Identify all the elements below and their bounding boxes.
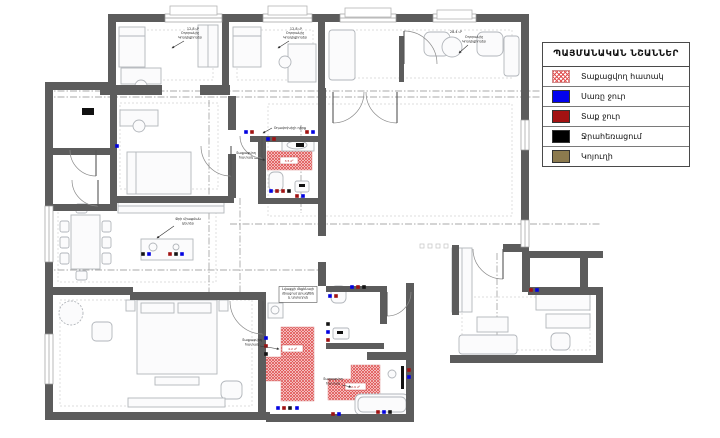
utility-marker	[272, 137, 276, 141]
utility-marker	[168, 252, 172, 256]
wall-segment	[53, 287, 133, 295]
wall-segment	[200, 85, 230, 95]
furniture	[76, 271, 87, 280]
utility-marker	[535, 288, 539, 292]
legend-item: Տաքացվող հատակ	[543, 67, 689, 87]
furniture	[536, 293, 590, 310]
legend-item-label: Կոյուղի	[581, 152, 613, 161]
furniture	[119, 27, 145, 67]
fixture-black	[296, 143, 304, 147]
wall-segment	[53, 204, 116, 211]
utility-marker	[287, 189, 291, 193]
window-sill	[437, 10, 472, 19]
legend-item-label: Ջրահեռացում	[581, 132, 642, 141]
annotation-label: հատակ	[245, 342, 259, 346]
furniture	[477, 317, 508, 332]
utility-marker	[356, 285, 360, 289]
furniture	[271, 306, 279, 314]
utility-marker	[301, 194, 305, 198]
furniture	[504, 36, 519, 76]
wall-segment	[318, 22, 325, 88]
utility-marker	[331, 412, 335, 416]
fixture-black	[82, 108, 94, 115]
furniture	[102, 237, 111, 248]
furniture	[269, 172, 283, 191]
utility-marker	[180, 252, 184, 256]
utility-marker	[266, 137, 270, 141]
utility-marker	[407, 375, 411, 379]
furniture	[60, 237, 69, 248]
wall-segment	[580, 251, 588, 293]
utility-marker	[147, 252, 151, 256]
annotation-leader	[157, 226, 174, 238]
furniture	[288, 44, 316, 82]
window-sill	[170, 6, 217, 15]
legend-swatch	[552, 110, 570, 123]
fixture-black	[401, 366, 404, 389]
furniture	[92, 322, 112, 341]
utility-marker	[382, 410, 386, 414]
wall-segment	[318, 88, 326, 206]
utility-marker	[269, 189, 273, 193]
utility-marker	[275, 189, 279, 193]
legend-title: ՊԱՅՄԱՆԱԿԱՆ ՆՇԱՆՆԵՐ	[543, 43, 689, 67]
annotation-leader	[278, 41, 289, 48]
utility-marker	[288, 406, 292, 410]
wall-segment	[228, 96, 236, 130]
utility-marker	[334, 294, 338, 298]
furniture	[126, 300, 135, 311]
furniture	[128, 398, 225, 407]
furniture	[551, 333, 570, 350]
annotation-label: 12.8 մ²	[187, 27, 200, 31]
annotation-label: 12.8 մ²	[290, 27, 303, 31]
furniture	[459, 335, 517, 354]
wall-segment	[450, 355, 603, 363]
utility-marker	[388, 410, 392, 414]
legend-swatch	[552, 150, 570, 163]
furniture	[279, 56, 291, 68]
door-swing-arc	[473, 249, 503, 279]
heated-floor-chip-label: 3.5 մ²	[285, 159, 295, 163]
annotation-label: Կոնդիցիոներ	[462, 39, 486, 43]
utility-marker	[264, 336, 268, 340]
legend-swatch	[552, 90, 570, 103]
floor-plan-page: 3.5 մ²4.2 մ²2.9 մ² ՕդորակիչԿոնդիցիոներՕդ…	[0, 0, 720, 438]
wall-segment	[318, 262, 326, 286]
fixture-black	[337, 331, 343, 334]
door-swing-arc	[201, 146, 231, 176]
annotation-label: հատակ	[239, 155, 253, 159]
utility-marker	[337, 412, 341, 416]
furniture	[133, 120, 145, 132]
annotation-label: և կոյուղուն	[288, 296, 309, 300]
utility-marker	[362, 285, 366, 289]
furniture	[149, 243, 157, 251]
heated-floor-chip-label: 4.2 մ²	[288, 347, 298, 351]
furniture	[60, 253, 69, 264]
furniture	[155, 377, 199, 385]
wall-segment	[53, 148, 116, 155]
furniture	[388, 370, 396, 378]
furniture	[219, 300, 228, 311]
legend-swatch	[552, 130, 570, 143]
furniture	[178, 303, 211, 313]
heated-floor-chip-label: 2.9 մ²	[351, 385, 361, 389]
legend-item: Ջրահեռացում	[543, 127, 689, 147]
furniture	[102, 253, 111, 264]
heated-floor-area	[281, 327, 314, 358]
utility-marker	[295, 406, 299, 410]
furniture	[141, 303, 174, 313]
annotation-leader	[172, 41, 184, 48]
heated-floor-area	[263, 357, 314, 381]
furniture	[233, 27, 261, 67]
wall-segment	[258, 198, 326, 204]
legend-swatch	[552, 70, 570, 83]
window-sill	[345, 8, 391, 17]
furniture	[173, 244, 179, 250]
wall-segment	[258, 292, 266, 420]
utility-marker	[174, 252, 178, 256]
legend-rows: Տաքացվող հատակՍառը ջուրՏաք ջուրՋրահեռացո…	[543, 67, 689, 166]
wall-segment	[326, 343, 384, 349]
wall-segment	[452, 245, 459, 315]
deco-square	[436, 244, 440, 248]
heated-floor-area	[281, 380, 314, 401]
annotation-leader	[263, 128, 272, 133]
fixture-black	[299, 184, 305, 187]
wall-segment	[222, 22, 229, 88]
wall-segment	[130, 292, 266, 300]
window-sill	[268, 6, 307, 15]
wall-segment	[45, 412, 270, 420]
annotation-label: Կոնդիցիոներ	[283, 35, 307, 39]
furniture	[221, 381, 242, 399]
plant	[59, 301, 83, 325]
utility-marker	[407, 368, 411, 372]
annotation-label: Կոնդիցիոներ	[178, 35, 202, 39]
heated-floor-area	[351, 365, 380, 380]
wall-segment	[326, 286, 382, 292]
furniture	[442, 37, 462, 57]
legend-item-label: Տաքացվող հատակ	[581, 72, 664, 81]
wall-segment	[108, 14, 116, 88]
furniture	[141, 239, 193, 260]
wall-segment	[596, 287, 603, 363]
utility-marker	[276, 406, 280, 410]
legend-item-label: Տաք ջուր	[581, 112, 620, 121]
wall-segment	[100, 85, 162, 95]
furniture	[358, 397, 406, 412]
furniture	[102, 221, 111, 232]
utility-marker	[326, 338, 330, 342]
annotation-label: հատակ	[326, 381, 340, 385]
annotation-label: Օդափոխիչի դիրք	[274, 126, 306, 130]
utility-marker	[141, 252, 145, 256]
wall-segment	[399, 36, 404, 82]
furniture	[127, 152, 191, 194]
wall-segment	[522, 252, 530, 292]
legend-item: Տաք ջուր	[543, 107, 689, 127]
legend-box: ՊԱՅՄԱՆԱԿԱՆ ՆՇԱՆՆԵՐ Տաքացվող հատակՍառը ջո…	[542, 42, 690, 167]
furniture	[60, 221, 69, 232]
furniture	[329, 30, 355, 80]
utility-marker	[281, 189, 285, 193]
utility-marker	[328, 294, 332, 298]
utility-marker	[244, 130, 248, 134]
wall-segment	[528, 287, 603, 295]
door-swing-arc	[72, 180, 98, 206]
utility-marker	[350, 285, 354, 289]
wall-segment	[367, 352, 414, 360]
wall-segment	[318, 206, 326, 236]
wall-segment	[528, 251, 603, 258]
utility-marker	[311, 130, 315, 134]
wall-segment	[116, 196, 234, 203]
utility-marker	[264, 352, 268, 356]
furniture	[546, 314, 590, 328]
utility-marker	[529, 288, 533, 292]
utility-marker	[376, 410, 380, 414]
utility-marker	[326, 330, 330, 334]
legend-item: Սառը ջուր	[543, 87, 689, 107]
annotation-label: 28.4 մ²	[450, 30, 463, 34]
annotation-label: կետեր	[182, 221, 194, 225]
utility-marker	[115, 144, 119, 148]
utility-marker	[282, 406, 286, 410]
deco-square	[444, 244, 448, 248]
deco-square	[420, 244, 424, 248]
utility-marker	[326, 322, 330, 326]
utility-marker	[250, 130, 254, 134]
wall-segment	[380, 286, 387, 324]
legend-item: Կոյուղի	[543, 147, 689, 166]
legend-item-label: Սառը ջուր	[581, 92, 626, 101]
deco-square	[428, 244, 432, 248]
furniture	[71, 215, 100, 269]
utility-marker	[295, 194, 299, 198]
utility-marker	[305, 130, 309, 134]
